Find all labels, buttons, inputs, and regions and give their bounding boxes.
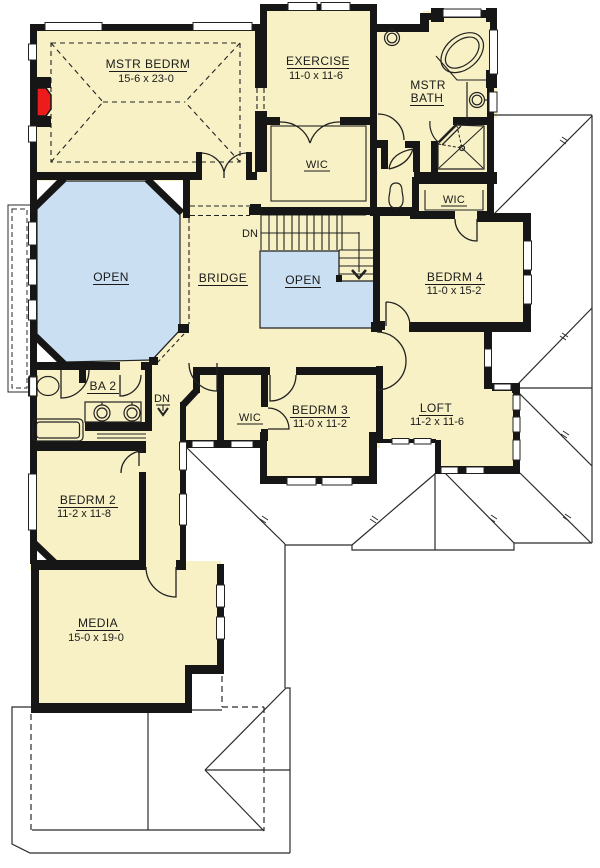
svg-text:11-0 x 11-6: 11-0 x 11-6 [289,70,343,82]
svg-text:WIC: WIC [443,194,465,206]
svg-text:BA 2: BA 2 [90,379,117,393]
svg-text:DN: DN [154,393,170,405]
svg-text:EXERCISE: EXERCISE [286,54,350,68]
svg-text:BATH: BATH [411,91,444,105]
svg-text:LOFT: LOFT [420,401,453,415]
svg-text:MSTR: MSTR [410,78,446,92]
svg-text:BEDRM 4: BEDRM 4 [427,270,483,284]
svg-text:DN: DN [242,228,258,240]
svg-text:WIC: WIC [306,159,328,171]
svg-text:OPEN: OPEN [93,270,129,284]
svg-text:BEDRM 3: BEDRM 3 [292,403,348,417]
svg-text:MEDIA: MEDIA [78,616,118,630]
svg-text:11-2 x 11-6: 11-2 x 11-6 [410,416,464,428]
svg-text:MSTR BEDRM: MSTR BEDRM [106,57,191,71]
svg-text:11-2 x 11-8: 11-2 x 11-8 [57,508,111,520]
svg-text:BEDRM 2: BEDRM 2 [60,493,116,507]
svg-text:15-6 x 23-0: 15-6 x 23-0 [118,73,174,85]
svg-text:15-0 x 19-0: 15-0 x 19-0 [68,632,124,644]
svg-text:BRIDGE: BRIDGE [199,271,247,285]
svg-text:OPEN: OPEN [285,273,321,287]
svg-text:WIC: WIC [239,412,261,424]
svg-text:11-0 x 11-2: 11-0 x 11-2 [293,418,347,430]
svg-text:11-0 x 15-2: 11-0 x 15-2 [427,285,482,297]
